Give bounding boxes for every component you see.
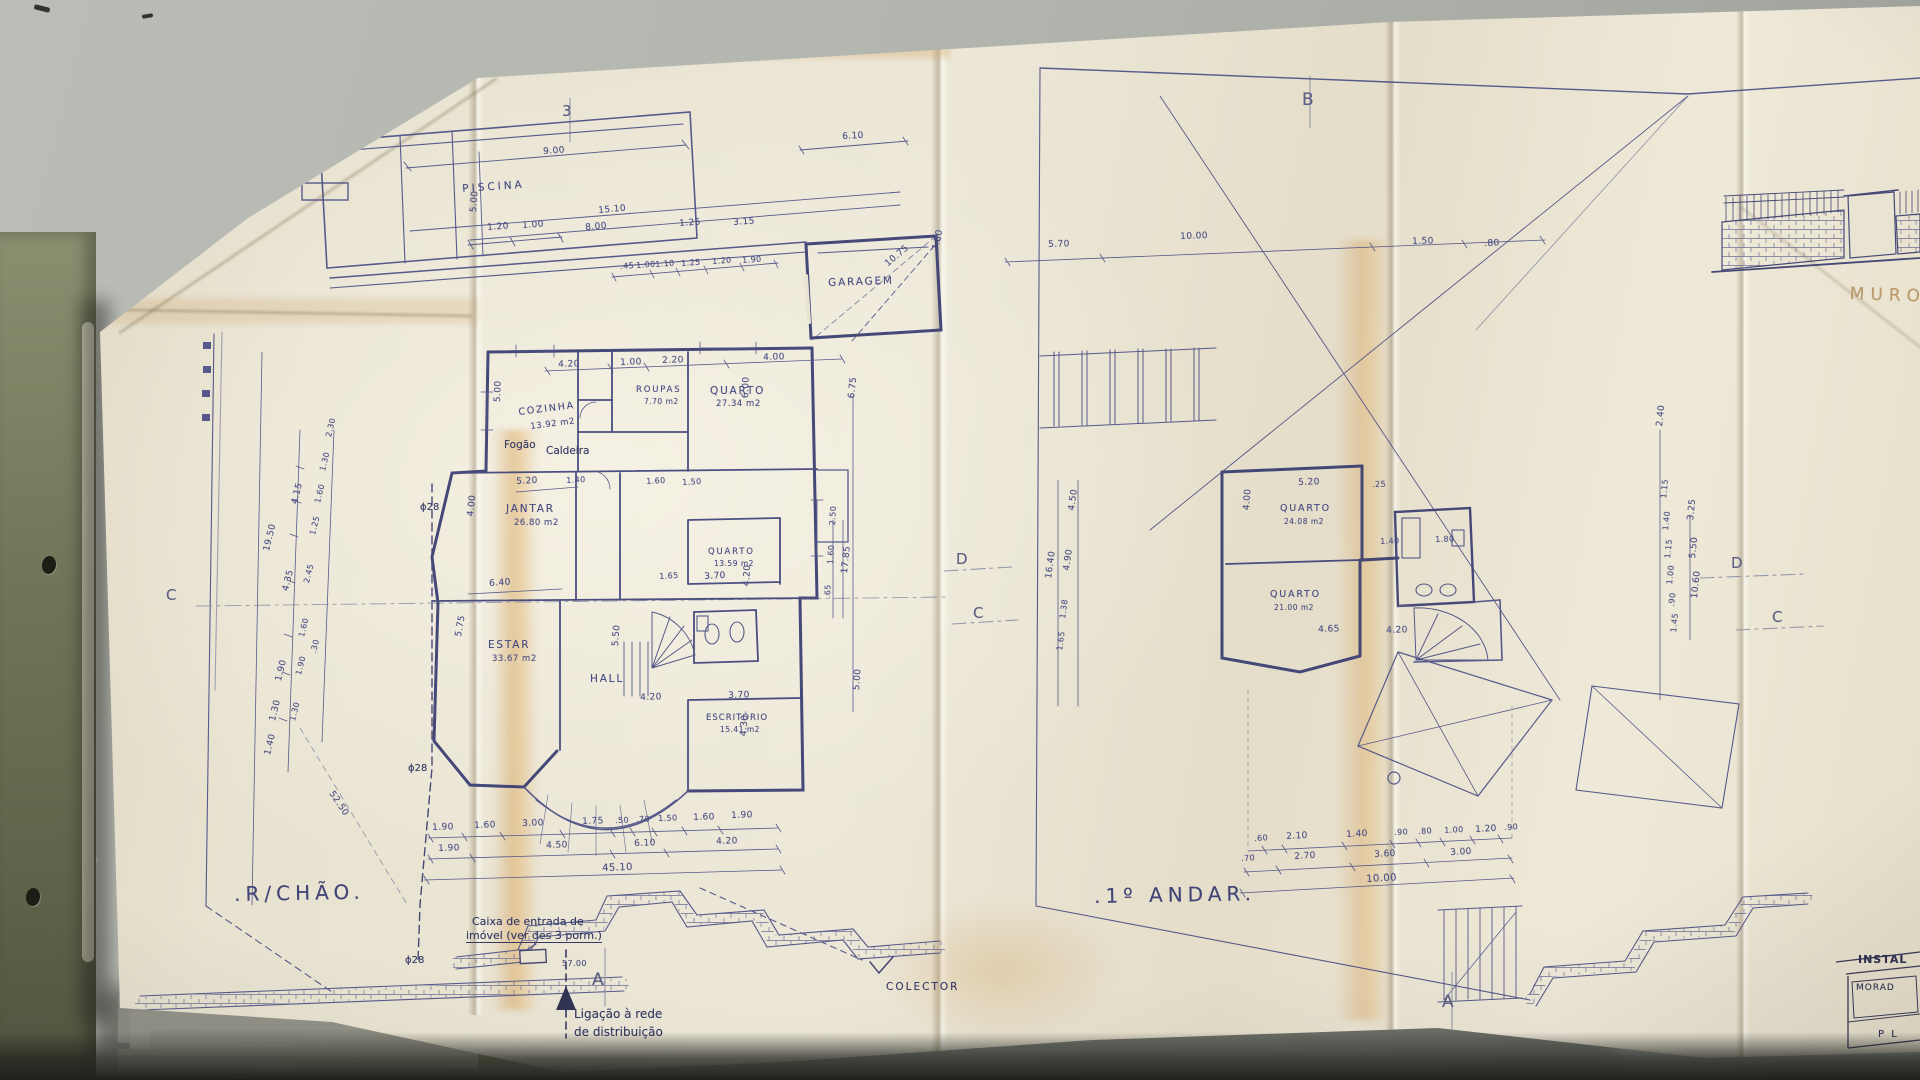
room-area: 27.34 m2	[716, 400, 761, 409]
marker-A: A	[1442, 994, 1454, 1011]
dim-label: .70	[636, 816, 650, 824]
dim-label: 6.00	[742, 376, 752, 398]
dim-label: 4.65	[1318, 625, 1340, 635]
dim-label: 1.60	[693, 813, 715, 823]
dim-label: 5.50	[612, 624, 622, 646]
dim-label: 1.20	[712, 257, 732, 266]
dim-label: 6.10	[634, 839, 656, 849]
dim-label: 2.20	[662, 356, 684, 366]
dim-label: 2.50	[829, 506, 838, 526]
dimension-lines	[252, 352, 853, 905]
dim-label: 1.50	[682, 478, 702, 487]
room-label: HALL	[590, 674, 624, 685]
pipe-diameter-label: ϕ28	[420, 503, 439, 513]
dim-label: 1.40	[1380, 537, 1400, 546]
entrance-note-line2: imóvel (ver des 3 porm.)	[466, 930, 602, 943]
dim-label: 3.00	[1450, 848, 1472, 858]
pergola	[1040, 348, 1216, 428]
marker-D: D	[956, 552, 968, 567]
dim-label: 1.20	[487, 222, 509, 232]
photo-of-blueprint: PISCINA GARAGEM COZINHA 13.92 m2 ROUPAS …	[0, 0, 1920, 1080]
dim-label: 1.25	[681, 259, 701, 268]
spiral-stair	[1414, 608, 1488, 660]
dim-label: 1.65	[659, 572, 679, 581]
dim-label: .65	[824, 584, 833, 598]
marker-C: C	[1772, 610, 1782, 625]
dim-label: 2.10	[1286, 832, 1308, 842]
dim-label: .25	[1372, 481, 1386, 489]
dim-label: 1.00	[620, 358, 642, 368]
dim-label: .90	[1668, 592, 1677, 607]
room-label: QUARTO	[1270, 590, 1321, 600]
room-label: QUARTO	[708, 548, 755, 557]
room-area: 24.08 m2	[1284, 518, 1324, 526]
pipe-diameter-label: ϕ28	[408, 764, 427, 774]
dim-label: 1.50	[658, 814, 678, 823]
basin-fixture	[1416, 584, 1432, 596]
stair-detail	[1438, 906, 1522, 1002]
house-outer-walls	[1222, 466, 1474, 672]
marker-A: A	[592, 972, 604, 989]
pipe-diameter-label: ϕ28	[405, 956, 424, 966]
dim-label: .90	[1394, 828, 1408, 837]
entrance-note-line1: Caixa de entrada de	[472, 916, 584, 927]
dim-label: 8.00	[585, 222, 607, 233]
dim-label: 1.90	[742, 256, 762, 265]
section-line-C	[196, 597, 948, 606]
marker-3: 3	[562, 104, 572, 119]
floor-title-first: .1º ANDAR.	[1094, 883, 1256, 906]
entrance-box	[520, 949, 547, 963]
title-block-line1: INSTAL	[1858, 954, 1907, 965]
floor-title-ground: .R/CHÃO.	[234, 882, 365, 904]
equipment-label-fogao: Fogão	[504, 440, 536, 451]
dim-label: 1.80	[1435, 535, 1455, 544]
dim-label: 10.00	[1180, 232, 1208, 242]
dim-label: 1.60	[646, 477, 666, 486]
dim-label: 1.50	[1412, 237, 1434, 247]
dim-label: 1.25	[679, 218, 701, 228]
dim-label: .50	[615, 817, 629, 825]
dim-label: 1.60	[827, 545, 836, 565]
dim-label: 4.20	[1386, 626, 1408, 636]
dim-label: 5.20	[516, 477, 538, 487]
roof-slab	[1576, 686, 1739, 808]
dim-label: 1.00	[636, 261, 656, 270]
room-label: QUARTO	[710, 386, 765, 397]
dim-label: 9.00	[543, 146, 565, 156]
room-label: ROUPAS	[636, 386, 681, 395]
dim-label: 1.90	[432, 823, 454, 833]
collector-label: COLECTOR	[886, 982, 959, 993]
wall-elevation-drawing	[1712, 190, 1920, 272]
marker-C: C	[973, 606, 983, 621]
stepped-stone-wall	[1530, 898, 1808, 1000]
dim-label: 3.60	[1374, 850, 1396, 860]
dim-label: .60	[1254, 834, 1268, 843]
room-label: ESCRITÓRIO	[706, 714, 768, 723]
dim-label: 4.20	[558, 360, 580, 370]
room-label: JANTAR	[506, 504, 555, 515]
staircase	[624, 612, 695, 696]
terrace-rhombus	[1358, 652, 1552, 796]
dim-label: 2.70	[1294, 852, 1316, 862]
room-label: GARAGEM	[828, 276, 894, 289]
room-label: ESTAR	[488, 640, 530, 651]
dim-label: 1.90	[731, 811, 753, 821]
dim-label: 1.10	[655, 260, 675, 269]
dim-label: 45.10	[602, 863, 633, 874]
room-area: 26.80 m2	[514, 519, 559, 528]
dim-label: .80	[1418, 827, 1432, 836]
dim-label: 1.40	[566, 476, 586, 485]
basin-fixture	[1440, 584, 1456, 596]
dim-label: 4.20	[743, 564, 753, 586]
dim-label: 3.70	[704, 572, 726, 582]
title-block-line2: MORAD	[1856, 984, 1895, 993]
dim-label: 6.40	[489, 578, 511, 588]
dim-label: 3.70	[728, 691, 750, 701]
garage	[806, 236, 941, 341]
marker-D: D	[1731, 556, 1743, 571]
dim-label: .90	[1504, 823, 1518, 832]
equipment-label-caldeira: Caldeira	[546, 446, 589, 457]
dim-label: 10.00	[1366, 873, 1397, 885]
dim-label: 3.00	[522, 819, 544, 829]
dim-label: 5.00	[470, 190, 480, 212]
collector-arrow	[870, 957, 893, 973]
dim-label: 4.20	[640, 693, 662, 703]
dim-label: 4.30	[740, 714, 750, 736]
marker-B: B	[1302, 92, 1314, 109]
dim-label: 4.20	[716, 837, 738, 847]
dim-label: 1.00	[1444, 826, 1464, 835]
dim-label: 1.40	[1346, 830, 1368, 840]
dim-label: 1.20	[1475, 825, 1497, 835]
dim-label: 1.75	[582, 817, 604, 827]
dim-label: 57.00	[562, 960, 587, 968]
dim-label: 4.50	[546, 841, 568, 851]
room-label: QUARTO	[1280, 504, 1331, 514]
dim-label: .80	[1484, 239, 1500, 249]
wc-fixture	[705, 624, 719, 644]
bathtub-fixture	[1402, 518, 1420, 558]
dim-label: 5.70	[1048, 240, 1070, 250]
dimension-lines	[1005, 236, 1690, 897]
dim-label: 1.60	[474, 821, 496, 831]
dim-label: 1.90	[438, 844, 460, 854]
section-line-D	[944, 567, 1012, 571]
dim-label: 4.00	[763, 353, 785, 363]
dim-label: 5.00	[853, 668, 863, 690]
dim-label: 5.20	[1298, 478, 1320, 488]
dim-label: 1.00	[522, 220, 544, 230]
dim-label: 6.10	[842, 132, 864, 142]
room-area: 7.70 m2	[644, 398, 679, 406]
marker-C: C	[166, 588, 176, 603]
muro-caption: MURO	[1849, 286, 1920, 306]
wc-fixture	[730, 622, 744, 642]
dim-label: 3.15	[733, 217, 755, 227]
terrace-arc	[524, 787, 688, 830]
dim-label: .70	[1241, 854, 1255, 863]
dim-label: 4.00	[1243, 488, 1253, 510]
pipe-line	[418, 484, 432, 962]
network-note-line1: Ligação à rede	[574, 1008, 662, 1020]
room-area: 21.00 m2	[1274, 604, 1314, 612]
desk-edge-shadow	[0, 1032, 1920, 1080]
dim-label: 5.00	[494, 380, 504, 402]
room-area: 33.67 m2	[492, 655, 537, 664]
dim-label: .45	[620, 262, 634, 271]
